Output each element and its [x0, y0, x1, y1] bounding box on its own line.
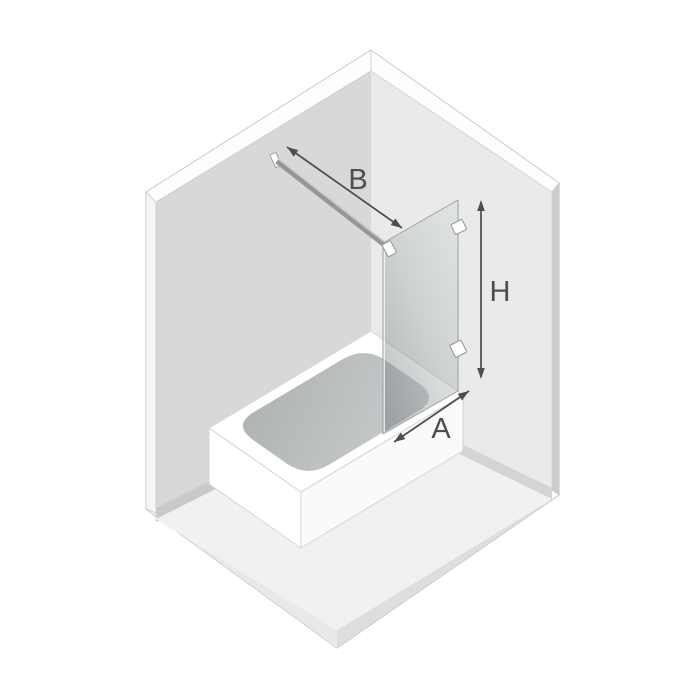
dimension-label-a: A	[431, 413, 451, 445]
dimension-label-h: H	[490, 276, 511, 308]
left-wall-outer-edge	[146, 192, 156, 513]
right-wall-outer-edge	[552, 183, 559, 495]
dimension-label-b: B	[348, 164, 367, 196]
bath-screen-dimension-diagram: B H A	[0, 0, 700, 700]
